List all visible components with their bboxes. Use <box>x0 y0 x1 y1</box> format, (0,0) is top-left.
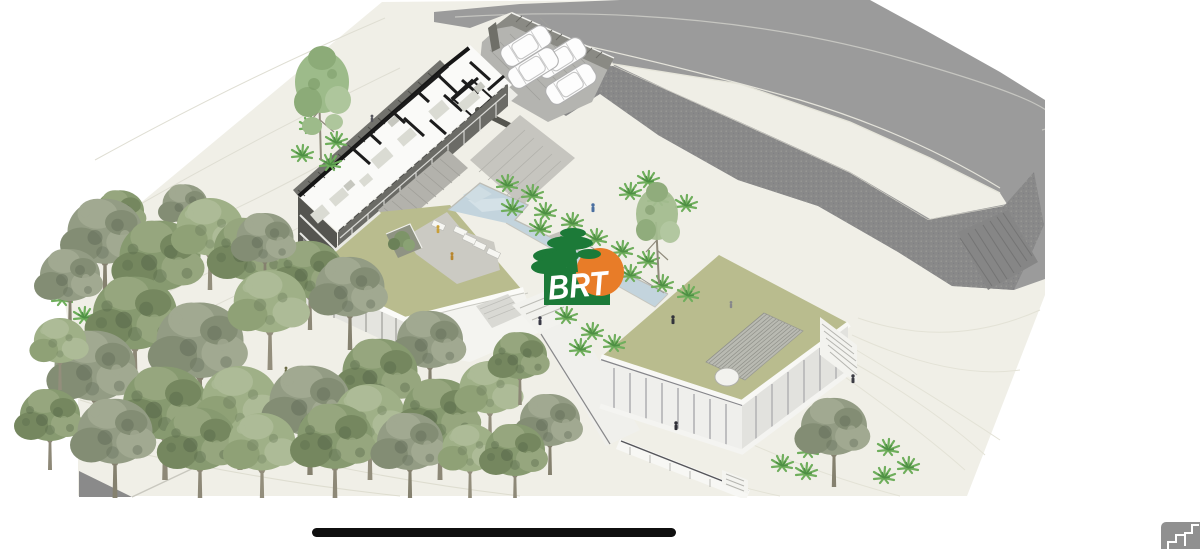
svg-text:BRT: BRT <box>546 264 612 307</box>
